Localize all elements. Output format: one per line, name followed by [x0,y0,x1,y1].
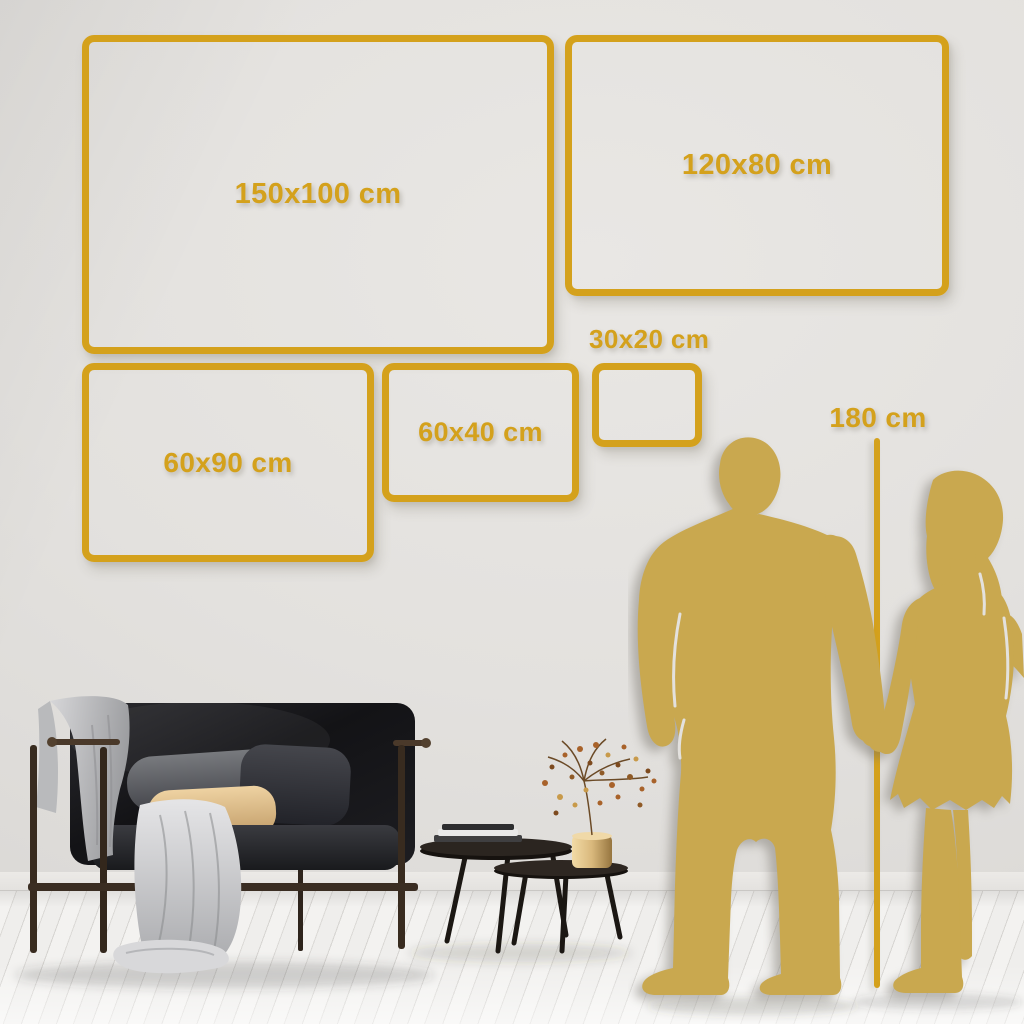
size-box-120x80: 120x80 cm [565,35,949,296]
woman-hand [868,728,892,752]
woman-front-leg [893,808,963,993]
table-legs [514,870,620,951]
sofa-and-tables-illustration [0,685,665,1024]
size-label-60x90: 60x90 cm [163,447,292,479]
book-stack [434,824,522,842]
sofa-leg [30,745,37,953]
size-box-60x40: 60x40 cm [382,363,579,502]
coffee-tables [420,739,657,951]
size-label-60x40: 60x40 cm [418,417,543,448]
size-label-150x100: 150x100 cm [235,178,402,211]
size-label-30x20: 30x20 cm [589,324,709,355]
brass-vase [572,832,612,868]
sofa [28,696,431,973]
sofa-leg [398,745,405,949]
couple-floor-shadows [648,994,1023,1015]
sofa-leg [100,747,107,953]
floor-shadows [15,944,632,988]
armrest-rail-left [50,739,120,745]
man-body [638,508,849,995]
size-guide-scene: 150x100 cm 120x80 cm 60x90 cm 60x40 cm 3… [0,0,1024,1024]
size-box-150x100: 150x100 cm [82,35,554,354]
size-box-60x90: 60x90 cm [82,363,374,562]
couple-silhouette [628,428,1024,1024]
woman-silhouette [868,471,1024,993]
size-label-120x80: 120x80 cm [682,149,832,182]
man-silhouette [638,437,887,995]
man-head [719,437,780,515]
